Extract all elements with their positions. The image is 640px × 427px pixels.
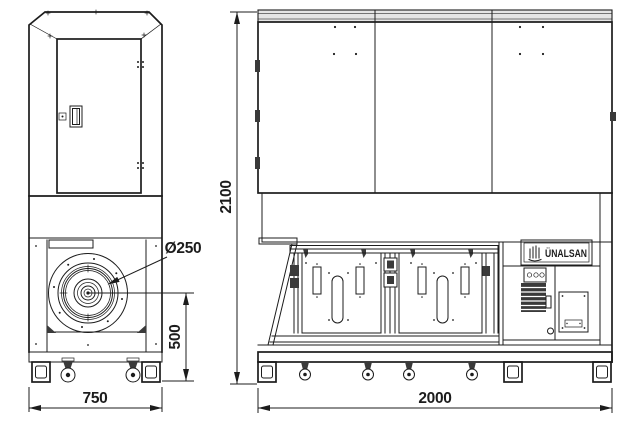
pulley (548, 328, 554, 334)
side-view: 750 500 Ø250 (29, 10, 201, 412)
bin-handle (461, 267, 469, 294)
bin-handle (356, 267, 364, 294)
front-base (258, 345, 612, 382)
foot-pad (142, 362, 160, 382)
bin-hinge (290, 265, 299, 276)
hinge (255, 110, 260, 122)
dim-fan-diameter: Ø250 (108, 240, 202, 285)
dim-label-fan-center-height: 500 (167, 325, 184, 350)
center-clamp (384, 258, 397, 287)
drawing-canvas: 750 500 Ø250 (0, 0, 640, 427)
bin-rail (290, 246, 498, 259)
dim-fan-center-height: 500 (88, 293, 194, 381)
dim-side-width: 750 (29, 387, 162, 412)
hopper-slope (268, 244, 297, 345)
foot-pad (32, 362, 50, 382)
hinge (255, 157, 260, 169)
hinge (255, 60, 260, 72)
bin-screws (410, 262, 477, 321)
bin-slot (332, 276, 343, 323)
dim-label-fan-diameter: Ø250 (165, 240, 202, 257)
dim-front-height: 2100 (218, 12, 257, 384)
foot-pad (504, 362, 522, 382)
dim-label-front-height: 2100 (218, 180, 235, 213)
dim-label-front-width: 2000 (418, 390, 451, 407)
bin-slot (437, 276, 448, 323)
caster-wheel (300, 362, 311, 380)
front-top-band (258, 10, 612, 22)
hopper-flange (259, 238, 297, 244)
foot-pad (593, 362, 611, 382)
bin-handle (313, 267, 321, 294)
panel-dividers (375, 10, 492, 193)
dim-front-width: 2000 (258, 388, 612, 413)
foot-pad (258, 362, 276, 382)
blower-scroll-top (49, 240, 93, 248)
caster-wheel (363, 362, 374, 380)
bin-hinge (290, 278, 299, 288)
bin-handle (418, 267, 426, 294)
bin-shelf (270, 336, 498, 342)
door-handle (59, 106, 82, 127)
access-panel (559, 292, 588, 332)
side-upper-cabinet (29, 10, 162, 196)
brand-plate: ÜNALSAN (521, 240, 592, 265)
side-base (29, 352, 162, 382)
panel-screws (333, 26, 544, 55)
motor-section: ÜNALSAN (499, 240, 600, 345)
dust-bin-1 (302, 253, 381, 333)
side-lower-cabinet (29, 196, 162, 352)
front-middle-band (259, 193, 612, 362)
brand-logo-icon (529, 246, 541, 261)
dust-bin-2 (399, 253, 482, 333)
front-upper-cabinet (255, 10, 616, 193)
front-view: ÜNALSAN (218, 10, 616, 413)
caster-wheel (467, 362, 478, 380)
screw-marks (46, 10, 149, 38)
dim-label-side-width: 750 (83, 390, 108, 407)
caster-wheel (404, 362, 415, 380)
bin-hinge (482, 266, 490, 276)
bin-screws (305, 262, 377, 321)
brand-text: ÜNALSAN (545, 247, 587, 260)
electric-motor (521, 268, 551, 312)
side-latch (610, 112, 616, 121)
technical-drawing: 750 500 Ø250 (0, 0, 640, 427)
